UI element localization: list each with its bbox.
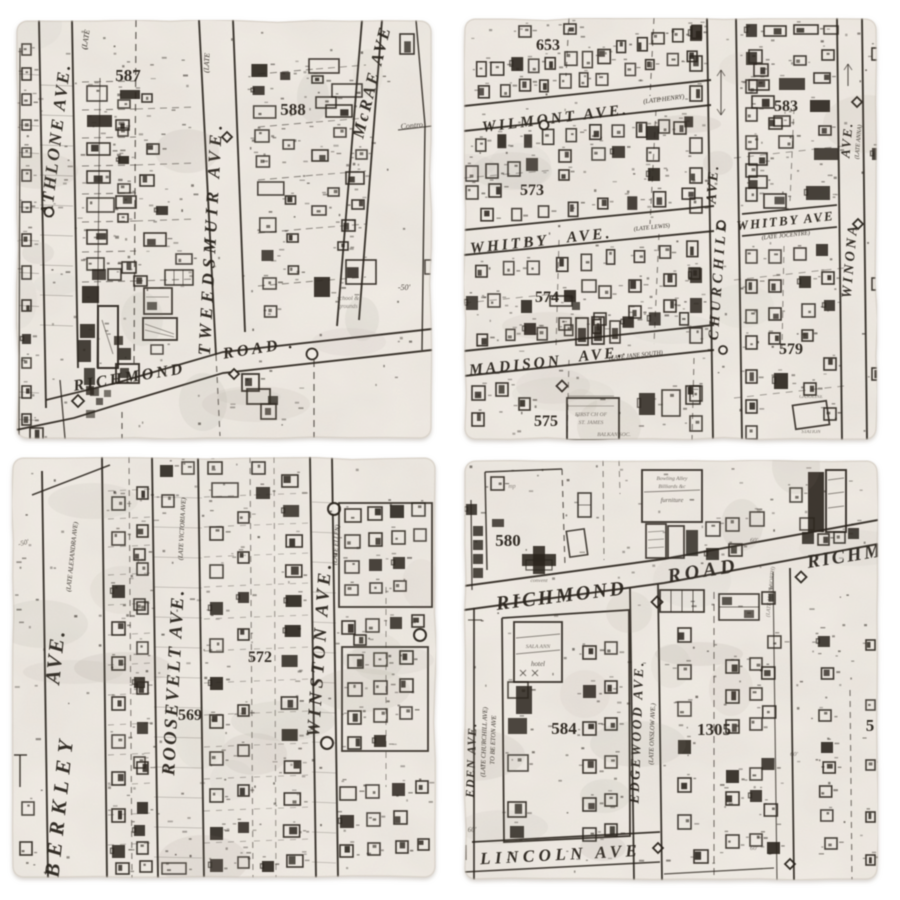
svg-text:convent: convent (530, 578, 548, 584)
svg-text:575: 575 (534, 413, 558, 430)
svg-text:584: 584 (551, 719, 577, 738)
svg-text:Bowling Alley: Bowling Alley (657, 476, 688, 482)
svg-text:580: 580 (495, 531, 521, 550)
svg-text:Billiards &c: Billiards &c (658, 484, 686, 490)
svg-text:60': 60' (750, 845, 759, 852)
svg-text:GASOLINE: GASOLINE (799, 395, 823, 400)
svg-text:5: 5 (866, 716, 875, 735)
svg-text:583: 583 (774, 98, 798, 115)
svg-text:579: 579 (779, 341, 803, 358)
svg-text:574: 574 (535, 289, 559, 306)
svg-text:-50': -50' (398, 283, 411, 292)
svg-text:(LATE: (LATE (201, 52, 211, 73)
svg-text:60': 60' (790, 751, 799, 758)
svg-text:mp: mp (508, 484, 515, 490)
svg-text:STATION: STATION (801, 430, 821, 435)
svg-text:furniture: furniture (661, 497, 684, 504)
svg-text:587: 587 (115, 66, 141, 85)
svg-text:hotel: hotel (531, 660, 545, 668)
svg-text:SALA ANN: SALA ANN (526, 644, 551, 650)
